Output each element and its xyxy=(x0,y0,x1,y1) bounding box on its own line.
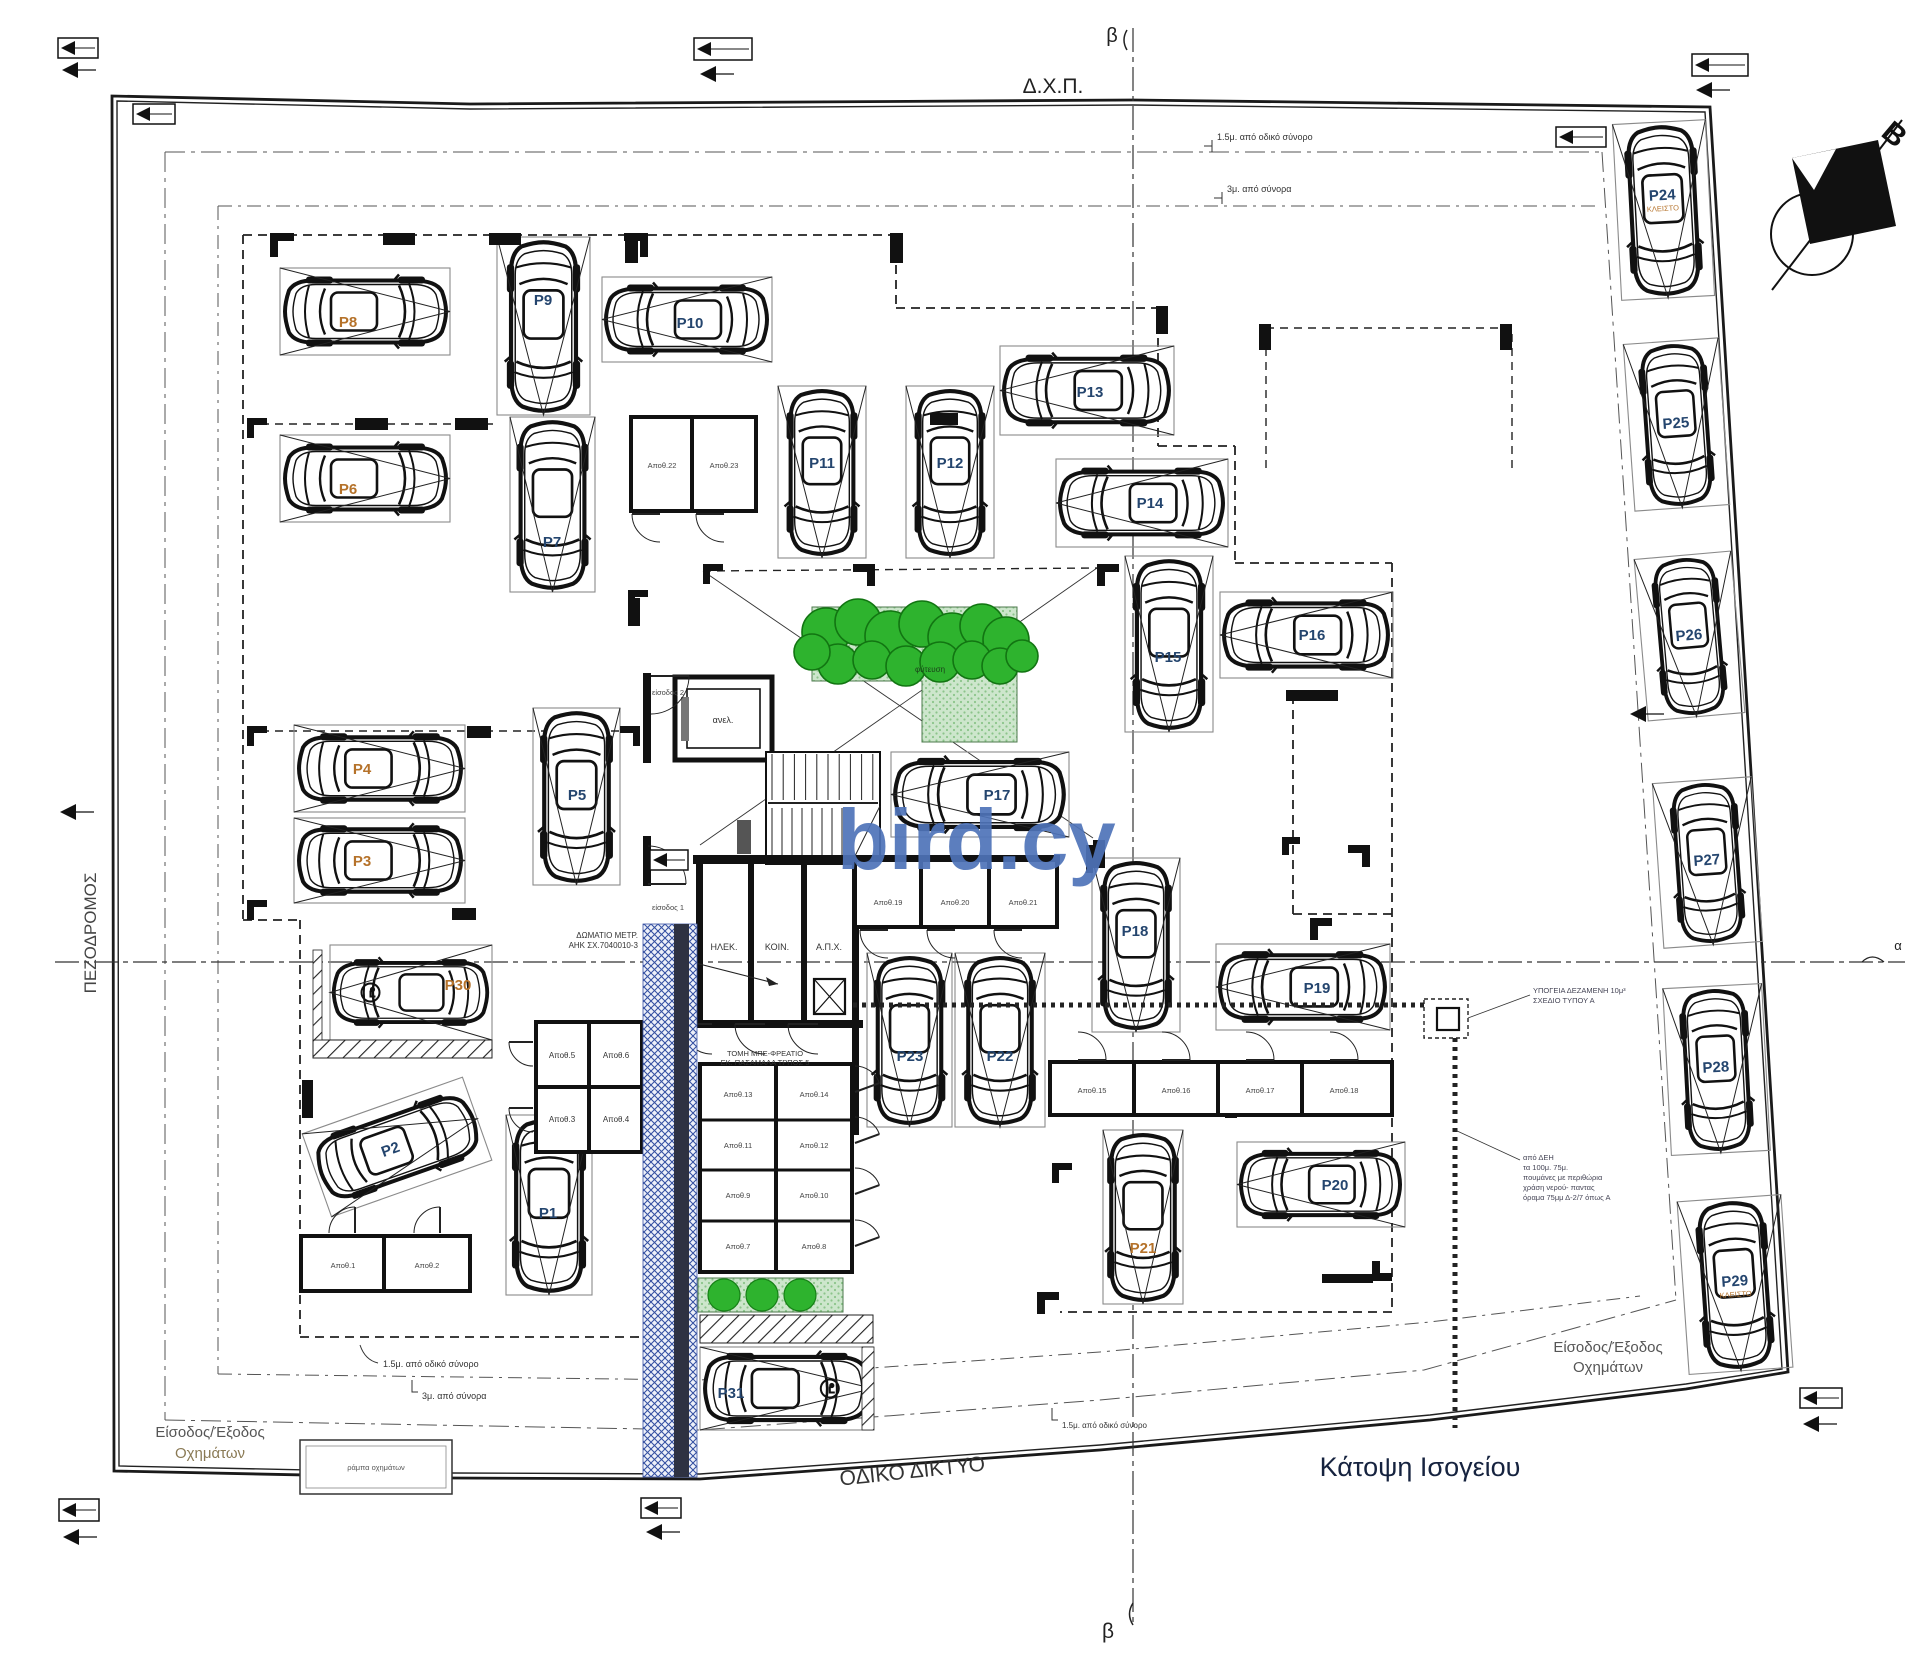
svg-text:από ΔΕΗ: από ΔΕΗ xyxy=(1523,1153,1554,1162)
svg-text:3μ. από σύνορα: 3μ. από σύνορα xyxy=(422,1391,486,1401)
svg-text:ανελ.: ανελ. xyxy=(713,715,734,725)
svg-text:Αποθ.9: Αποθ.9 xyxy=(726,1191,751,1200)
svg-text:Αποθ.16: Αποθ.16 xyxy=(1162,1086,1191,1095)
svg-text:P8: P8 xyxy=(339,314,357,331)
svg-text:1.5μ. από οδικό σύνορο: 1.5μ. από οδικό σύνορο xyxy=(383,1359,479,1369)
svg-text:Αποθ.23: Αποθ.23 xyxy=(710,461,739,470)
svg-text:φύτευση: φύτευση xyxy=(915,665,945,674)
svg-text:P19: P19 xyxy=(1304,980,1331,997)
svg-text:πουμάνες με περιθώρια: πουμάνες με περιθώρια xyxy=(1523,1173,1603,1182)
svg-text:P4: P4 xyxy=(353,761,372,778)
svg-text:P15: P15 xyxy=(1155,649,1182,666)
svg-text:Αποθ.22: Αποθ.22 xyxy=(648,461,677,470)
svg-text:P1: P1 xyxy=(539,1205,557,1222)
svg-text:ράμπα οχημάτων: ράμπα οχημάτων xyxy=(347,1463,405,1472)
svg-text:Αποθ.18: Αποθ.18 xyxy=(1330,1086,1359,1095)
svg-text:α: α xyxy=(1894,938,1902,953)
svg-text:P3: P3 xyxy=(353,853,371,870)
svg-text:P11: P11 xyxy=(809,455,835,472)
svg-text:P20: P20 xyxy=(1322,1177,1349,1194)
svg-text:P24: P24 xyxy=(1648,186,1676,204)
svg-text:Αποθ.3: Αποθ.3 xyxy=(549,1115,576,1124)
svg-text:P31: P31 xyxy=(718,1385,745,1402)
svg-text:Αποθ.15: Αποθ.15 xyxy=(1078,1086,1107,1095)
svg-text:1.5μ. από οδικό σύνορο: 1.5μ. από οδικό σύνορο xyxy=(1062,1421,1148,1430)
svg-text:Οχημάτων: Οχημάτων xyxy=(1573,1359,1643,1376)
svg-text:Αποθ.6: Αποθ.6 xyxy=(603,1051,630,1060)
svg-text:χράση νερού- παντας: χράση νερού- παντας xyxy=(1523,1183,1595,1192)
svg-text:Αποθ.4: Αποθ.4 xyxy=(603,1115,630,1124)
svg-text:P30: P30 xyxy=(445,977,472,994)
svg-text:ΚΛΕΙΣΤΟ: ΚΛΕΙΣΤΟ xyxy=(1647,203,1680,214)
svg-text:P28: P28 xyxy=(1702,1058,1730,1076)
svg-text:Κάτοψη Ισογείου: Κάτοψη Ισογείου xyxy=(1320,1452,1521,1482)
svg-text:P25: P25 xyxy=(1662,414,1690,433)
svg-text:P29: P29 xyxy=(1721,1272,1749,1291)
svg-text:Αποθ.1: Αποθ.1 xyxy=(331,1261,356,1270)
svg-text:ΗΛΕΚ.: ΗΛΕΚ. xyxy=(710,942,737,952)
svg-text:P12: P12 xyxy=(937,455,964,472)
svg-text:όραμα 75μμ Δ-2/7 όπως Α: όραμα 75μμ Δ-2/7 όπως Α xyxy=(1523,1193,1610,1202)
svg-text:Αποθ.19: Αποθ.19 xyxy=(874,898,903,907)
svg-text:P22: P22 xyxy=(987,1048,1014,1065)
svg-text:P7: P7 xyxy=(543,534,561,551)
svg-text:Αποθ.8: Αποθ.8 xyxy=(802,1242,827,1251)
svg-text:1.5μ. από οδικό σύνορο: 1.5μ. από οδικό σύνορο xyxy=(1217,132,1313,142)
svg-text:ΣΧΕΔΙΟ ΤΥΠΟΥ Α: ΣΧΕΔΙΟ ΤΥΠΟΥ Α xyxy=(1533,996,1595,1005)
svg-text:ΥΠΟΓΕΙΑ ΔΕΖΑΜΕΝΗ 10μ³: ΥΠΟΓΕΙΑ ΔΕΖΑΜΕΝΗ 10μ³ xyxy=(1533,986,1626,995)
svg-text:τα 100μ. 75μ.: τα 100μ. 75μ. xyxy=(1523,1163,1568,1172)
svg-text:P21: P21 xyxy=(1130,1240,1157,1257)
svg-text:Αποθ.12: Αποθ.12 xyxy=(800,1141,829,1150)
svg-text:P16: P16 xyxy=(1299,627,1326,644)
svg-text:Αποθ.14: Αποθ.14 xyxy=(800,1090,829,1099)
svg-text:Α.Π.Χ.: Α.Π.Χ. xyxy=(816,942,842,952)
svg-text:ΑΗΚ ΣΧ.7040010-3: ΑΗΚ ΣΧ.7040010-3 xyxy=(569,941,639,950)
svg-text:Είσοδος/Έξοδος: Είσοδος/Έξοδος xyxy=(1553,1339,1662,1356)
svg-text:P26: P26 xyxy=(1675,626,1703,645)
svg-text:Αποθ.7: Αποθ.7 xyxy=(726,1242,751,1251)
svg-text:ΚΟΙΝ.: ΚΟΙΝ. xyxy=(765,942,789,952)
svg-text:Αποθ.21: Αποθ.21 xyxy=(1009,898,1038,907)
svg-text:P6: P6 xyxy=(339,481,357,498)
svg-text:Αποθ.10: Αποθ.10 xyxy=(800,1191,829,1200)
svg-text:Αποθ.5: Αποθ.5 xyxy=(549,1051,576,1060)
svg-text:Αποθ.2: Αποθ.2 xyxy=(415,1261,440,1270)
svg-text:β: β xyxy=(1102,1620,1114,1643)
svg-text:Αποθ.13: Αποθ.13 xyxy=(724,1090,753,1099)
svg-text:είσοδος 2: είσοδος 2 xyxy=(652,688,684,697)
svg-text:Δ.Χ.Π.: Δ.Χ.Π. xyxy=(1023,75,1084,98)
svg-text:Αποθ.17: Αποθ.17 xyxy=(1246,1086,1275,1095)
svg-text:Οχημάτων: Οχημάτων xyxy=(175,1445,245,1462)
svg-text:Είσοδος/Έξοδος: Είσοδος/Έξοδος xyxy=(155,1424,264,1441)
svg-text:bird.cy: bird.cy xyxy=(837,793,1116,888)
svg-text:P13: P13 xyxy=(1077,384,1104,401)
svg-text:είσοδος 1: είσοδος 1 xyxy=(652,903,684,912)
svg-text:ΕΚ. ΠΑΣΑΜΑΛΑ ΤΡΠΟΣ 5: ΕΚ. ΠΑΣΑΜΑΛΑ ΤΡΠΟΣ 5 xyxy=(721,1058,810,1067)
svg-text:P14: P14 xyxy=(1137,495,1164,512)
svg-text:β: β xyxy=(1106,25,1118,47)
svg-text:Αποθ.11: Αποθ.11 xyxy=(724,1141,752,1150)
svg-text:Αποθ.20: Αποθ.20 xyxy=(941,898,970,907)
svg-text:P18: P18 xyxy=(1122,923,1149,940)
svg-text:ΤΟΜΗ ΜΠΕ-ΦΡΕΑΤΙΟ: ΤΟΜΗ ΜΠΕ-ΦΡΕΑΤΙΟ xyxy=(727,1049,803,1058)
svg-text:P27: P27 xyxy=(1693,851,1721,870)
svg-text:P10: P10 xyxy=(677,315,704,332)
svg-text:P5: P5 xyxy=(568,787,586,804)
svg-text:ΠΕΖΟΔΡΟΜΟΣ: ΠΕΖΟΔΡΟΜΟΣ xyxy=(81,873,100,994)
svg-text:3μ. από σύνορα: 3μ. από σύνορα xyxy=(1227,184,1291,194)
svg-text:P23: P23 xyxy=(897,1048,924,1065)
svg-text:ΔΩΜΑΤΙΟ ΜΕΤΡ.: ΔΩΜΑΤΙΟ ΜΕΤΡ. xyxy=(576,931,638,940)
svg-text:P9: P9 xyxy=(534,292,552,309)
